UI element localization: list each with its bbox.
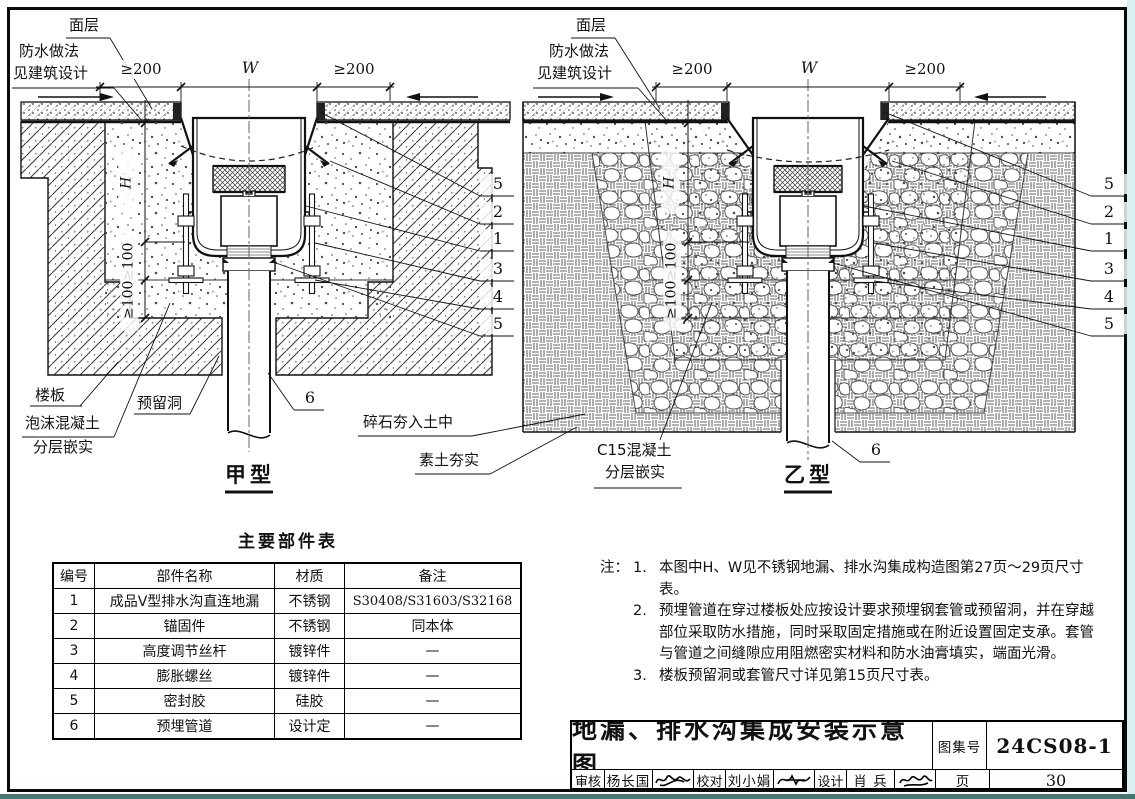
part-number: 4 [54,664,94,688]
part-material: 设计定 [274,714,344,738]
col-header-part-name: 部件名称 [94,564,274,588]
b-gravel-label: 碎石夯入土中 [362,413,454,432]
b-callout-3: 3 [1091,259,1127,279]
a-slab-label: 楼板 [34,386,66,405]
table-row: 3 高度调节丝杆 镀锌件 — [54,638,520,663]
b-callout-2: 2 [1091,202,1127,222]
a-callout-2: 2 [480,202,516,222]
b-type-title: 乙型 [758,462,860,488]
table-row: 6 预埋管道 设计定 — [54,713,520,738]
part-number: 5 [54,689,94,713]
atlas-number-label: 图集号 [932,722,986,769]
b-dim-depth: H [661,152,679,214]
title-block: 地漏、排水沟集成安装示意图 图集号 24CS08-1 审核 杨长国 校对 刘小娟… [570,720,1124,790]
designer-label: 设计 [814,770,846,790]
parts-table-header-row: 编号 部件名称 材质 备注 [54,564,520,588]
designer-signature [894,770,935,790]
proofreader-label: 校对 [693,770,725,790]
b-soil-label: 素土夯实 [418,451,480,470]
designer-name: 肖 兵 [846,770,894,790]
part-material: 不锈钢 [274,589,344,613]
part-name: 膨胀螺丝 [94,664,274,688]
proofreader-signature [773,770,814,790]
drawing-sheet: 面层 防水做法 见建筑设计 ≥200 W ≥200 H ≥100 ≥100 5 … [0,0,1135,799]
table-row: 2 锚固件 不锈钢 同本体 [54,613,520,638]
reviewer-label: 审核 [572,770,604,790]
notes-prefix: 注： [600,558,629,580]
table-row: 5 密封胶 硅胶 — [54,688,520,713]
a-waterproof-label-line1: 防水做法 [18,42,80,61]
b-waterproof-label-line2: 见建筑设计 [536,64,613,83]
b-concrete-label-line1: C15混凝土 [596,441,673,460]
a-callout-4: 4 [480,287,516,307]
a-reserved-hole-label: 预留洞 [136,394,183,413]
a-callout-5-top: 5 [480,174,516,194]
signature-scribble [896,771,934,789]
note-number: 2. [633,601,659,666]
parts-table-title: 主要部件表 [52,532,524,553]
a-dim-left: ≥200 [110,60,172,79]
a-callout-1: 1 [480,229,516,249]
b-concrete-label-line2: 分层嵌实 [604,463,666,482]
a-foam-label-line2: 分层嵌实 [32,438,94,457]
b-dim-width: W [778,58,840,78]
a-foam-label-line1: 泡沫混凝土 [24,414,101,433]
b-waterproof-label-line1: 防水做法 [548,42,610,61]
part-material: 镀锌件 [274,664,344,688]
table-row: 1 成品V型排水沟直连地漏 不锈钢 S30408/S31603/S32168 [54,588,520,613]
reviewer-name: 杨长国 [604,770,652,790]
a-type-title: 甲型 [199,462,301,488]
sheet-title: 地漏、排水沟集成安装示意图 [572,722,932,769]
proofreader-name: 刘小娟 [725,770,773,790]
reviewer-signature [652,770,693,790]
part-name: 锚固件 [94,614,274,638]
a-dim-depth: H [118,152,136,214]
note-item-3: 3. 楼板预留洞或套管尺寸详见第15页尺寸表。 [633,666,1105,688]
table-row: 4 膨胀螺丝 镀锌件 — [54,663,520,688]
a-callout-5-bottom: 5 [480,314,516,334]
part-number: 2 [54,614,94,638]
part-remark: S30408/S31603/S32168 [344,589,520,613]
a-callout-6: 6 [294,388,326,408]
a-dim-v2: ≥100 [120,269,138,331]
b-callout-4: 4 [1091,287,1127,307]
b-callout-1: 1 [1091,229,1127,249]
b-callout-5-top: 5 [1091,174,1127,194]
part-remark: — [344,639,520,663]
b-dim-right: ≥200 [894,60,956,79]
part-name: 高度调节丝杆 [94,639,274,663]
notes-block: 注： 1. 本图中H、W见不锈钢地漏、排水沟集成构造图第27页～29页尺寸表。 … [600,558,1105,687]
part-name: 密封胶 [94,689,274,713]
part-remark: — [344,714,520,738]
b-callout-6: 6 [860,440,892,460]
note-text: 楼板预留洞或套管尺寸详见第15页尺寸表。 [659,666,1105,688]
part-name: 预埋管道 [94,714,274,738]
page-label: 页 [935,770,989,790]
a-dim-right: ≥200 [323,60,385,79]
b-surface-label: 面层 [575,16,607,35]
note-text: 预埋管道在穿过楼板处应按设计要求预埋钢套管或预留洞，并在穿越部位采取防水措施，同… [659,601,1105,666]
part-number: 3 [54,639,94,663]
part-material: 不锈钢 [274,614,344,638]
col-header-number: 编号 [54,564,94,588]
note-text: 本图中H、W见不锈钢地漏、排水沟集成构造图第27页～29页尺寸表。 [659,558,1105,601]
part-name: 成品V型排水沟直连地漏 [94,589,274,613]
page-number: 30 [989,770,1122,790]
part-material: 镀锌件 [274,639,344,663]
part-number: 1 [54,589,94,613]
signature-scribble [775,771,813,789]
a-dim-width: W [219,58,281,78]
part-remark: — [344,689,520,713]
atlas-number-value: 24CS08-1 [986,722,1122,769]
signature-scribble [654,771,692,789]
b-dim-v2: ≥100 [663,269,681,331]
note-number: 3. [633,666,659,688]
b-callout-5-bottom: 5 [1091,314,1127,334]
part-material: 硅胶 [274,689,344,713]
note-number: 1. [633,558,659,601]
a-callout-3: 3 [480,259,516,279]
note-item-2: 2. 预埋管道在穿过楼板处应按设计要求预埋钢套管或预留洞，并在穿越部位采取防水措… [633,601,1105,666]
parts-table: 编号 部件名称 材质 备注 1 成品V型排水沟直连地漏 不锈钢 S30408/S… [52,562,522,740]
title-block-row-1: 地漏、排水沟集成安装示意图 图集号 24CS08-1 [572,722,1122,770]
part-remark: — [344,664,520,688]
b-dim-left: ≥200 [661,60,723,79]
col-header-remark: 备注 [344,564,520,588]
col-header-material: 材质 [274,564,344,588]
title-block-row-2: 审核 杨长国 校对 刘小娟 设计 肖 兵 页 30 [572,770,1122,790]
part-remark: 同本体 [344,614,520,638]
a-surface-label: 面层 [68,16,100,35]
a-waterproof-label-line2: 见建筑设计 [12,64,89,83]
part-number: 6 [54,714,94,738]
note-item-1: 1. 本图中H、W见不锈钢地漏、排水沟集成构造图第27页～29页尺寸表。 [633,558,1105,601]
